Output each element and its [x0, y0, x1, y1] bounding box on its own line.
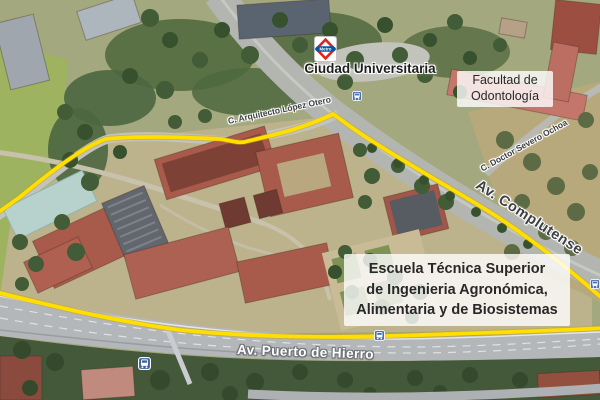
faculty-annotation-box: Facultad de Odontología [457, 71, 553, 107]
school-line-2: de Ingenieria Agronómica, [346, 280, 568, 301]
svg-text:Metro: Metro [320, 47, 332, 52]
faculty-line-1: Facultad de [459, 73, 551, 89]
school-line-3: Alimentaria y de Biosistemas [346, 300, 568, 321]
metro-logo-icon[interactable]: Metro [314, 36, 337, 62]
school-annotation-box: Escuela Técnica Superior de Ingenieria A… [344, 254, 570, 326]
bus-stop-icon[interactable] [590, 279, 600, 289]
aerial-map[interactable]: Metro Ciudad Universitaria C. Arquitecto… [0, 0, 600, 400]
school-line-1: Escuela Técnica Superior [346, 259, 568, 280]
bus-stop-icon[interactable] [138, 357, 151, 370]
faculty-line-2: Odontología [459, 89, 551, 105]
bus-stop-icon[interactable] [374, 330, 385, 341]
bus-stop-icon[interactable] [352, 91, 362, 101]
metro-station-label[interactable]: Ciudad Universitaria [303, 61, 437, 76]
